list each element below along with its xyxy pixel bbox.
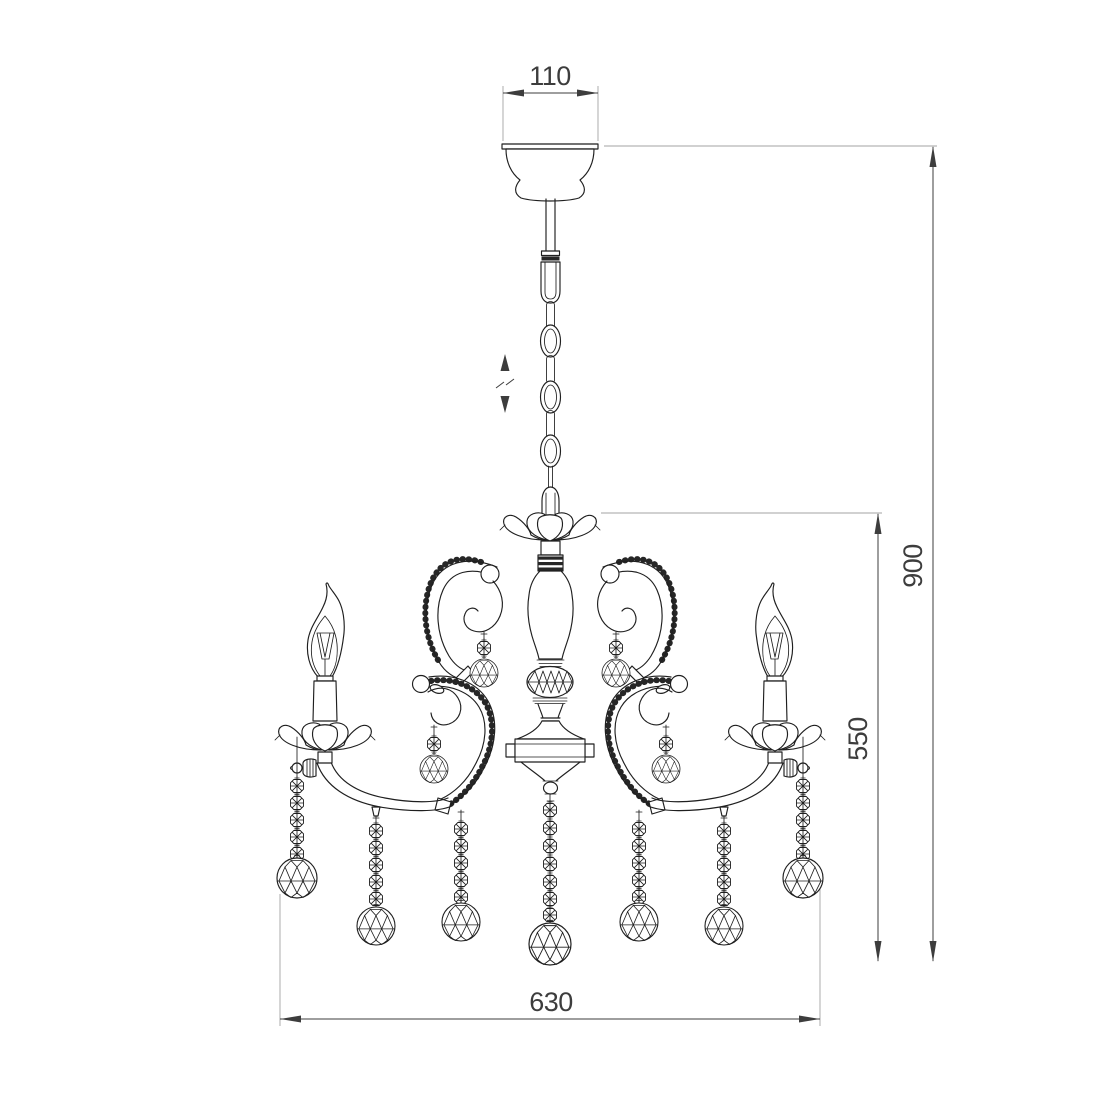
- top-bobeche: [500, 513, 600, 541]
- dimension-label-body-height: 550: [843, 717, 873, 761]
- left-side-assembly: [275, 559, 502, 945]
- hub-body: [515, 739, 585, 762]
- centre-column: [500, 513, 600, 794]
- chandelier-dimension-drawing: 110 900 550 630: [0, 0, 1100, 1100]
- centre-crystal-strand: [529, 794, 571, 965]
- hub-tab: [585, 744, 594, 757]
- dimension-canopy-width: 110: [503, 61, 598, 141]
- suspension-chain: [541, 199, 561, 517]
- right-side-assembly: [598, 559, 825, 945]
- dimension-label-canopy-width: 110: [529, 61, 571, 91]
- dimension-label-overall-height: 900: [898, 544, 928, 588]
- ceiling-canopy: [502, 144, 598, 201]
- hub-tab: [506, 744, 515, 757]
- drawing-canvas: 110 900 550 630: [0, 0, 1100, 1100]
- height-adjust-icon: [496, 354, 514, 413]
- dimension-overall-height: 900: [604, 146, 937, 962]
- chain-link: [541, 302, 561, 468]
- dimension-label-overall-width: 630: [529, 987, 573, 1017]
